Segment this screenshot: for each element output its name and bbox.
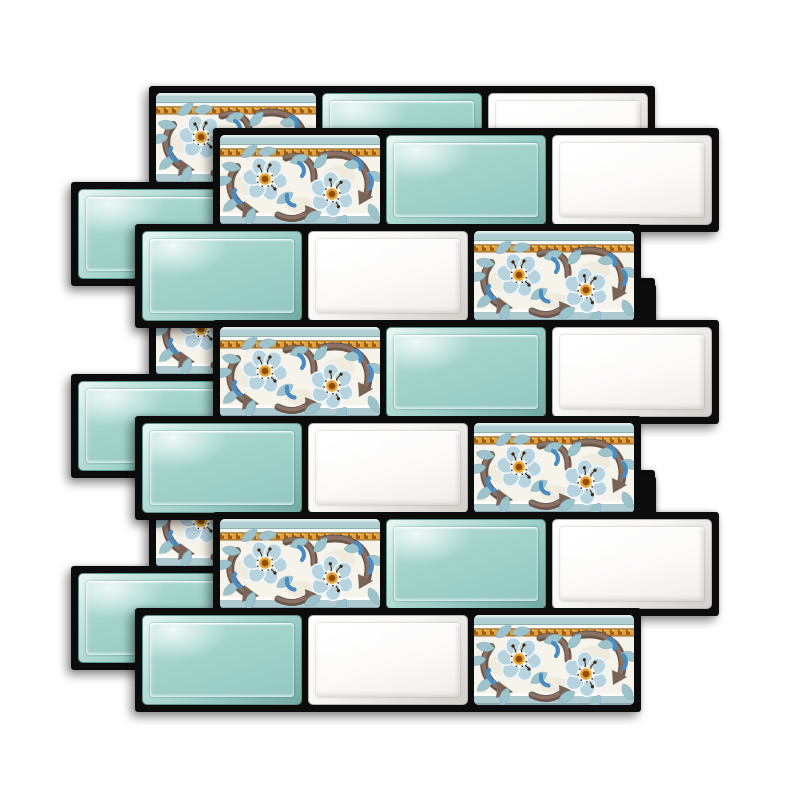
teal-tile xyxy=(142,231,302,321)
floral-tile xyxy=(220,519,380,609)
white-tile xyxy=(552,135,712,225)
white-tile xyxy=(552,519,712,609)
floral-pattern-graphic xyxy=(474,615,634,705)
white-tile xyxy=(308,423,468,513)
teal-tile xyxy=(142,423,302,513)
floral-tile xyxy=(220,135,380,225)
floral-pattern-graphic xyxy=(474,423,634,513)
tile-sheet-front xyxy=(0,0,800,800)
floral-tile xyxy=(474,231,634,321)
floral-pattern-graphic xyxy=(220,327,380,417)
product-photo-tile-sheets xyxy=(0,0,800,800)
floral-tile xyxy=(474,423,634,513)
white-tile xyxy=(308,615,468,705)
teal-tile xyxy=(386,135,546,225)
teal-tile xyxy=(142,615,302,705)
teal-tile xyxy=(386,519,546,609)
floral-pattern-graphic xyxy=(474,231,634,321)
floral-tile xyxy=(220,327,380,417)
white-tile xyxy=(308,231,468,321)
floral-tile xyxy=(474,615,634,705)
teal-tile xyxy=(386,327,546,417)
floral-pattern-graphic xyxy=(220,135,380,225)
floral-pattern-graphic xyxy=(220,519,380,609)
white-tile xyxy=(552,327,712,417)
